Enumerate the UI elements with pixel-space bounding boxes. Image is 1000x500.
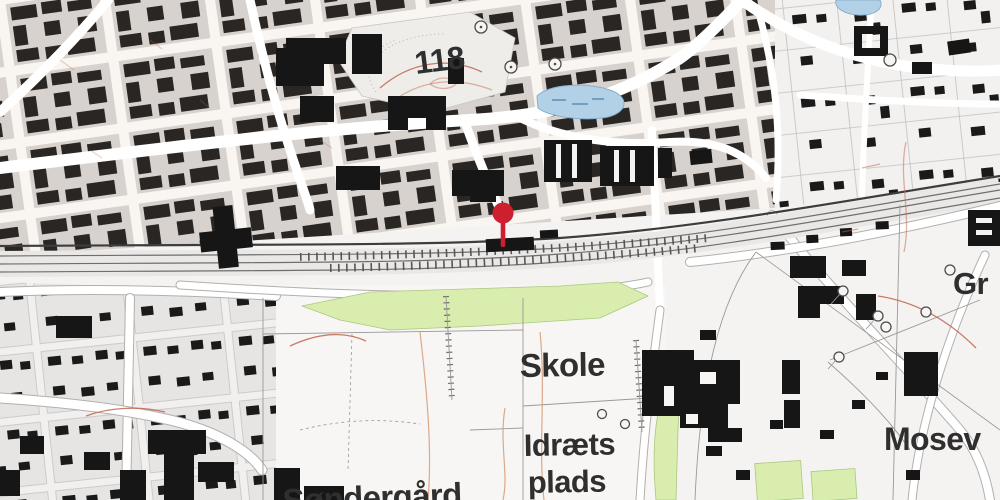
monument-symbol: [475, 21, 487, 33]
map-label-idraetsplads-line2: plads: [528, 464, 607, 500]
map-label-skole: Skole: [519, 346, 605, 384]
monument-symbol: [549, 58, 561, 70]
map-label-idraetsplads-line1: Idræts: [524, 426, 616, 463]
map-label-mosev: Mosev: [884, 421, 981, 457]
monument-symbol: [505, 61, 517, 73]
topographic-map: 118SkoleIdrætspladsSøndergårdMosevGr: [0, 0, 1000, 500]
pond: [537, 85, 624, 119]
station-building: [486, 237, 535, 252]
pin-head: [493, 203, 514, 224]
building-rail-east: [968, 210, 1000, 246]
map-label-elevation-118: 118: [412, 39, 466, 81]
map-label-gr: Gr: [953, 266, 989, 301]
map-canvas[interactable]: 118SkoleIdrætspladsSøndergårdMosevGr: [0, 0, 1000, 500]
